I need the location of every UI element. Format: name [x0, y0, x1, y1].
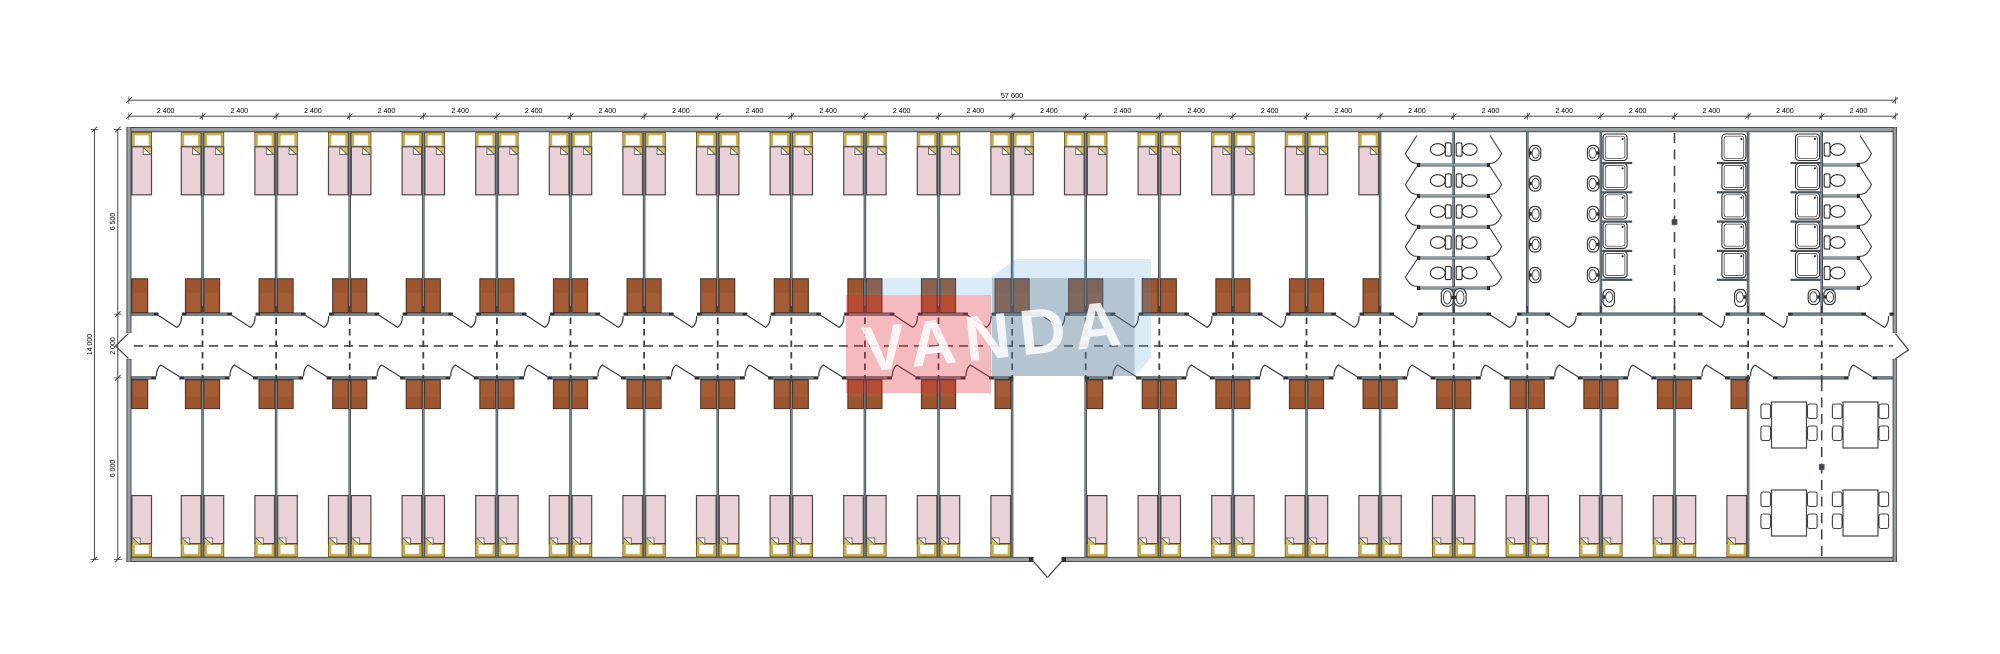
svg-text:2 400: 2 400: [231, 108, 249, 115]
svg-text:2 400: 2 400: [1776, 108, 1794, 115]
svg-text:2 400: 2 400: [1482, 108, 1500, 115]
svg-text:2 400: 2 400: [967, 108, 985, 115]
svg-text:2 400: 2 400: [1335, 108, 1353, 115]
svg-text:2 400: 2 400: [893, 108, 911, 115]
svg-text:57 600: 57 600: [1001, 91, 1024, 100]
svg-text:2 400: 2 400: [378, 108, 396, 115]
svg-text:2 400: 2 400: [1114, 108, 1132, 115]
svg-text:2 400: 2 400: [599, 108, 617, 115]
svg-text:2 400: 2 400: [1850, 108, 1868, 115]
svg-text:6 500: 6 500: [110, 213, 117, 231]
svg-text:6 000: 6 000: [110, 460, 117, 478]
svg-text:2 400: 2 400: [746, 108, 764, 115]
svg-text:2 400: 2 400: [1408, 108, 1426, 115]
svg-text:2 400: 2 400: [1555, 108, 1573, 115]
svg-text:2 400: 2 400: [525, 108, 543, 115]
svg-text:2 400: 2 400: [1703, 108, 1721, 115]
svg-text:2 400: 2 400: [1261, 108, 1279, 115]
svg-text:2 400: 2 400: [451, 108, 469, 115]
svg-text:14 000: 14 000: [87, 334, 94, 356]
svg-text:2 400: 2 400: [1040, 108, 1058, 115]
svg-text:2 400: 2 400: [1187, 108, 1205, 115]
svg-text:2 400: 2 400: [157, 108, 175, 115]
svg-text:2 400: 2 400: [304, 108, 322, 115]
svg-text:2 400: 2 400: [1629, 108, 1647, 115]
svg-text:2 400: 2 400: [819, 108, 837, 115]
svg-text:2 400: 2 400: [672, 108, 690, 115]
